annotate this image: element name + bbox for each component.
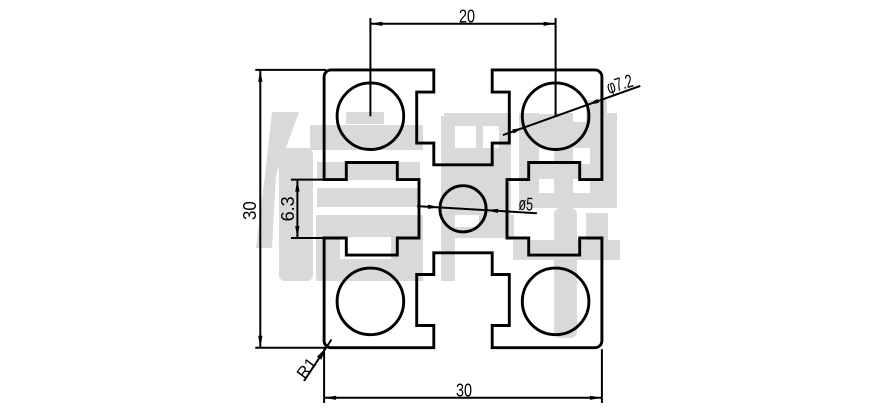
svg-text:R1: R1	[293, 355, 320, 383]
svg-text:6.3: 6.3	[277, 196, 298, 221]
svg-text:φ7.2: φ7.2	[604, 70, 635, 98]
svg-text:30: 30	[239, 201, 260, 220]
svg-text:ø5: ø5	[518, 193, 534, 215]
svg-text:20: 20	[459, 5, 475, 26]
svg-text:30: 30	[456, 379, 472, 400]
